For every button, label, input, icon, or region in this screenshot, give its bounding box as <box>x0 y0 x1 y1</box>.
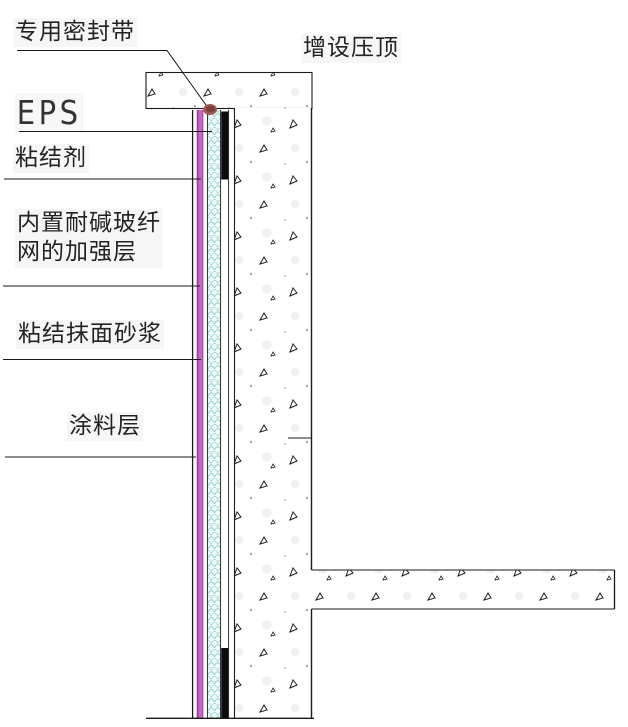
mesh-layer-label-line2: 网的加强层 <box>17 238 161 267</box>
sealing-tape-core <box>206 106 215 113</box>
eps-label: EPS <box>15 93 83 132</box>
coping-concrete <box>146 73 312 109</box>
adhesive-dab-bottom <box>221 648 228 718</box>
floor-slab <box>312 570 615 609</box>
mesh-layer-label: 内置耐碱玻纤 网的加强层 <box>15 209 163 268</box>
finish-mortar-layer-edge <box>197 110 199 718</box>
sealing-tape-label: 专用密封带 <box>13 18 137 47</box>
coping-label: 增设压顶 <box>301 34 401 63</box>
finish-mortar-layer-edge-right <box>202 110 203 718</box>
eps-board-layer <box>207 110 220 718</box>
adhesive-dab-top <box>221 112 228 180</box>
wall-insulation-detail-diagram: 专用密封带 增设压顶 EPS 粘结剂 内置耐碱玻纤 网的加强层 粘结抹面砂浆 涂… <box>0 0 628 727</box>
mortar-label: 粘结抹面砂浆 <box>16 320 164 349</box>
concrete-wall <box>234 108 312 718</box>
mesh-layer-label-line1: 内置耐碱玻纤 <box>17 209 161 238</box>
coating-label: 涂料层 <box>67 412 143 441</box>
adhesive-label: 粘结剂 <box>13 144 89 173</box>
detail-drawing-canvas <box>0 0 628 727</box>
